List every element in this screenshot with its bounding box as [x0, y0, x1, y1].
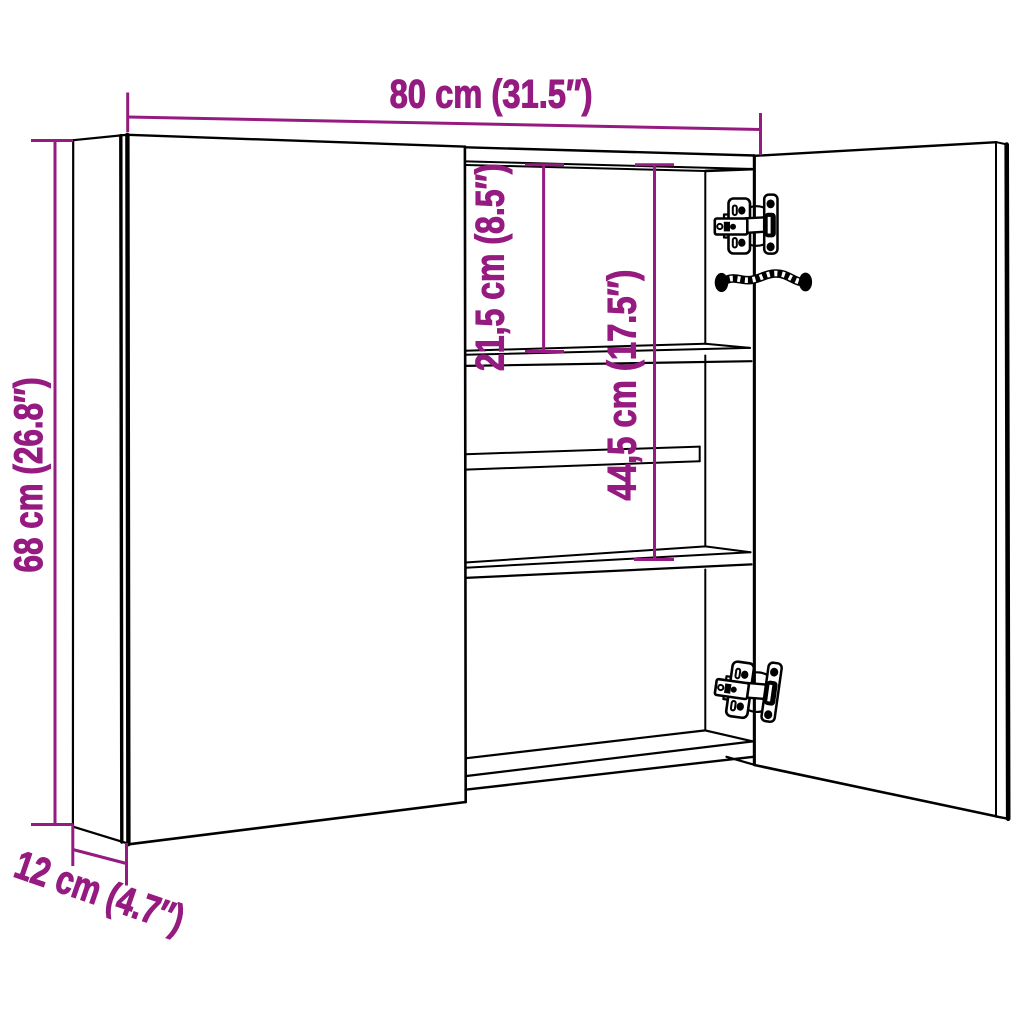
svg-text:80 cm (31.5″): 80 cm (31.5″)	[390, 71, 593, 116]
svg-text:44,5 cm (17.5″): 44,5 cm (17.5″)	[599, 270, 644, 501]
svg-text:21,5 cm (8.5″): 21,5 cm (8.5″)	[467, 163, 512, 371]
svg-text:68 cm (26.8″): 68 cm (26.8″)	[5, 377, 51, 572]
